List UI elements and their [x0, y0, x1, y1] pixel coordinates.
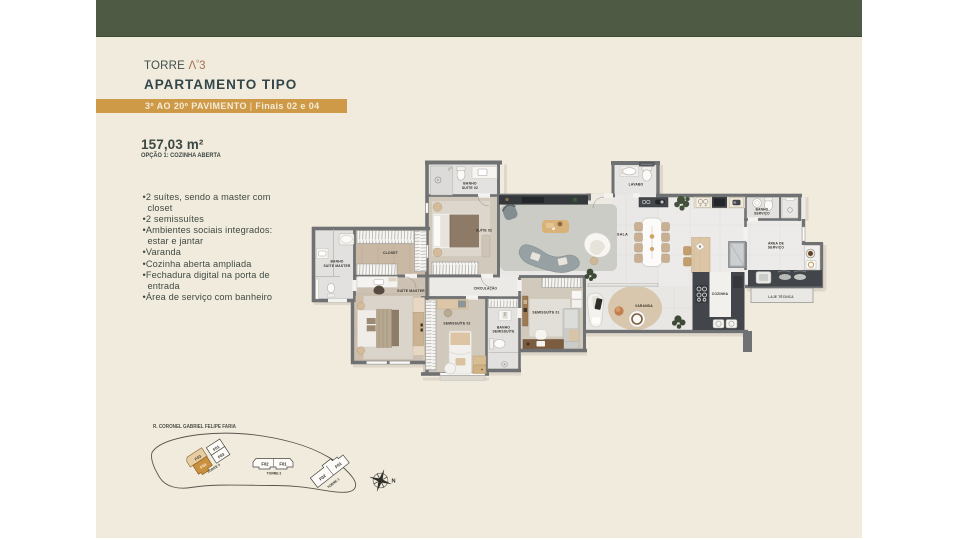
- svg-text:SEMISSUÍTE: SEMISSUÍTE: [493, 329, 516, 334]
- svg-text:SERVIÇO: SERVIÇO: [754, 212, 770, 216]
- svg-text:SEMISSUÍTE 02: SEMISSUÍTE 02: [443, 321, 470, 326]
- svg-text:SEMISSUÍTE 01: SEMISSUÍTE 01: [532, 309, 559, 314]
- svg-text:TORRE 2: TORRE 2: [267, 472, 282, 476]
- svg-text:LAVABO: LAVABO: [629, 182, 644, 186]
- svg-text:SUÍTE 02: SUÍTE 02: [476, 228, 492, 233]
- svg-text:SUÍTE 02: SUÍTE 02: [462, 185, 478, 190]
- svg-text:LAJE TÉCNICA: LAJE TÉCNICA: [768, 294, 794, 299]
- svg-text:VARANDA: VARANDA: [635, 304, 653, 308]
- svg-text:CIRCULAÇÃO: CIRCULAÇÃO: [474, 286, 498, 291]
- svg-text:F01: F01: [279, 462, 287, 467]
- svg-text:F02: F02: [261, 462, 269, 467]
- svg-text:SUÍTE MASTER: SUÍTE MASTER: [397, 288, 425, 293]
- svg-text:COZINHA: COZINHA: [712, 292, 729, 296]
- svg-text:N: N: [392, 479, 396, 485]
- svg-text:SERVIÇO: SERVIÇO: [768, 246, 784, 250]
- svg-text:SUÍTE MASTER: SUÍTE MASTER: [324, 263, 351, 268]
- svg-text:R. CORONEL GABRIEL FELIPE FARI: R. CORONEL GABRIEL FELIPE FARIA: [153, 424, 236, 430]
- svg-text:BANHO: BANHO: [463, 182, 477, 186]
- svg-text:ÁREA DE: ÁREA DE: [768, 240, 785, 245]
- svg-text:SALA: SALA: [617, 232, 628, 236]
- svg-text:CLOSET: CLOSET: [383, 251, 399, 255]
